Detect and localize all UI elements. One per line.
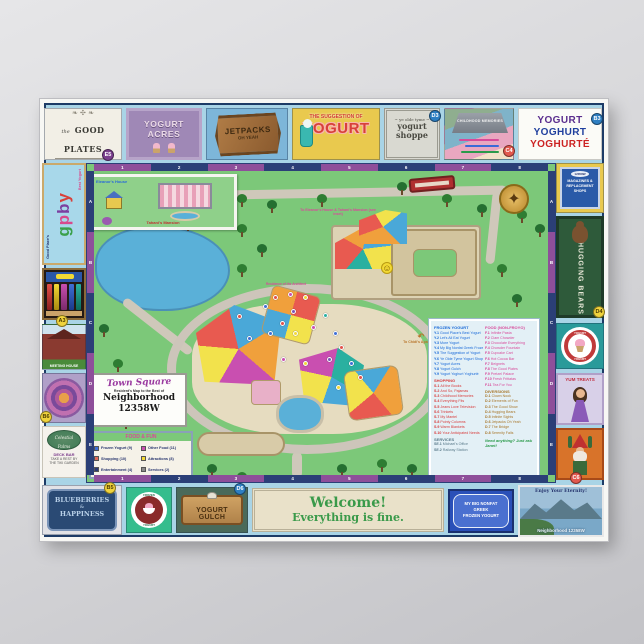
entry-code: S.7 [434, 415, 439, 419]
machine [54, 284, 59, 310]
location-marker [358, 375, 363, 380]
machine [61, 284, 66, 310]
entry-name: Serenity Falls [492, 431, 514, 435]
sign-yogurt-acres-label: YOGURT ACRES [129, 119, 199, 139]
gulch-wood-plaque: YOGURT GULCH [181, 495, 243, 525]
entry-name: Hugging Bears [492, 410, 516, 414]
grid-badge-yoghurte: B3 [591, 113, 603, 125]
grid-row-label: C [548, 293, 555, 354]
location-marker [311, 325, 316, 330]
location-marker [333, 331, 338, 336]
entry-name: Yogurt Gulch [440, 367, 461, 371]
dresser-illustration [452, 113, 508, 133]
welcome-line1: Welcome! [255, 495, 441, 511]
legend-item: Attractions (8) [141, 454, 188, 465]
storefront-awning [46, 272, 82, 282]
entry-code: D.1 [485, 394, 491, 398]
yoghurte-line1: YOGURT [519, 115, 601, 127]
blueberry-line3: HAPPINESS [49, 510, 115, 518]
entry-name: Yogurt Acres [440, 362, 460, 366]
entry-code: F.10 [485, 377, 492, 381]
gpby-b: b [54, 202, 73, 213]
cupcake-base [576, 346, 584, 352]
entry-name: Michael's Office [443, 442, 468, 446]
grid-col-label: 3 [208, 164, 265, 171]
entry-name: Infinite Pasta [491, 331, 512, 335]
entry-name: Jeans Love Television [440, 405, 475, 409]
directory-section-shopping: SHOPPING S.1All the BooksS.2And So, Paja… [434, 378, 483, 436]
grid-row-label: E [548, 414, 555, 475]
entry-name: Elements of Fun [492, 399, 518, 403]
entry-name: Clown Nook [492, 394, 511, 398]
welcome-line2: Everything is fine. [255, 511, 441, 524]
dress [571, 400, 589, 422]
meeting-house-photo: MEETING HOUSE [42, 324, 86, 370]
gpby-y: y [54, 192, 73, 202]
photo-background: ❧ ✣ ❧ the GOOD PLATES E5 YOGURT ACRES JE… [0, 0, 644, 644]
gulch-label: YOGURT GULCH [183, 507, 241, 521]
entry-name: My Mantel [440, 415, 457, 419]
grid-col-label: 2 [151, 164, 208, 171]
entry-code: Y.8 [434, 367, 439, 371]
legend-item: Other Food (11) [141, 443, 188, 454]
location-marker [303, 361, 308, 366]
tree [397, 182, 407, 195]
grid-col-label: 3 [208, 475, 265, 482]
grid-col-label: 6 [378, 164, 435, 171]
grid-row-label: E [87, 414, 94, 475]
grid-row-label: A [548, 171, 555, 232]
ring-text-bottom: YOGURT [561, 357, 599, 361]
entry-code: F.5 [485, 351, 490, 355]
directory-section-services: SERVICES SE.1Michael's OfficeSE.2Railway… [434, 437, 483, 453]
grid-col-label: 2 [151, 475, 208, 482]
entry-name: More Yogurt [440, 341, 459, 345]
gpby-wordmark: gpby [54, 192, 74, 237]
entry-code: S.1 [434, 384, 439, 388]
grid-badge-mandala: B6 [40, 411, 52, 423]
entry-name: Tea For You [493, 383, 512, 387]
machine [69, 284, 74, 310]
grid-col-label: 8 [491, 475, 548, 482]
entry-code: Y.3 [434, 341, 439, 345]
gpby-side-right: Best Yogurt [78, 169, 82, 190]
section-title: SERVICES [434, 437, 483, 442]
title-number: 12358W [93, 404, 185, 415]
pie-roof-building [343, 364, 404, 421]
entry-code: Y.5 [434, 351, 439, 355]
grid-strip-right: ABCDE [548, 171, 555, 475]
legend-label: Other Food (11) [148, 446, 176, 450]
directory-entry: D.8Serenity Falls [485, 431, 534, 436]
label-to-eleanor: To Eleanor's House & Tahani's Mansion (s… [296, 208, 380, 217]
trolley-windows [415, 181, 449, 188]
entry-code: S.2 [434, 389, 439, 393]
hostess-illustration [571, 387, 589, 423]
long-building [197, 432, 285, 456]
location-marker [339, 345, 344, 350]
storefront-photo [42, 268, 86, 320]
grid-badge-shoppe: D3 [429, 110, 441, 122]
celestial-logo: Celestial Palms [47, 430, 81, 450]
medal-text-top: FROZEN [131, 493, 167, 497]
tree [237, 224, 247, 237]
small-building [251, 380, 281, 405]
entry-name: And So, Pajamas [440, 389, 468, 393]
legend-swatch [94, 467, 99, 472]
nonfat-line2: GREEK [474, 507, 489, 512]
entry-name: Hot Cocoa Bar [491, 357, 515, 361]
tree [267, 200, 277, 213]
entry-name: My Big Nonfat Greek Frozen Yogurt [440, 346, 483, 350]
grid-row-label: B [87, 232, 94, 293]
gnome-hat [572, 434, 588, 448]
directory-left-column: FROZEN YOGURT Y.1Good Place's Best Yogur… [434, 324, 483, 472]
bear-illustration [572, 225, 588, 243]
tree [512, 294, 522, 307]
location-marker [288, 292, 293, 297]
entry-name: Pretzel Palace [491, 372, 514, 376]
section-title: SHOPPING [434, 378, 483, 383]
tree [535, 224, 545, 237]
entry-code: F.6 [485, 357, 490, 361]
grid-row-label: B [548, 232, 555, 293]
legend-swatch [141, 456, 146, 461]
shell-icon [207, 492, 217, 499]
script-squiggle [461, 151, 499, 153]
entry-name: The Suggestion of Yogurt [440, 351, 480, 355]
entry-code: S.4 [434, 399, 439, 403]
postcard-bottom-text: Neighborhood 12358W [520, 528, 602, 533]
grid-badge-good-plates: E5 [102, 149, 114, 161]
entry-code: D.2 [485, 399, 491, 403]
entry-name: The Good Plates [491, 367, 518, 371]
entry-name: The Good Show [492, 405, 518, 409]
entry-name: Railway Station [443, 448, 468, 452]
sign-my-big-nonfat: MY BIG NONFAT GREEK FROZEN YOGURT [448, 489, 514, 533]
entry-code: S.3 [434, 394, 439, 398]
froyo-cone-icon [153, 143, 160, 153]
sign-yogurt-acres: YOGURT ACRES [126, 108, 202, 160]
card-garden-gnome [556, 428, 604, 480]
entry-code: Y.9 [434, 372, 439, 376]
nonfat-line1: MY BIG NONFAT [465, 501, 498, 506]
medal-disc: FROZEN YOGURT [131, 492, 167, 528]
directory-entry: Y.9Yogurt Yoghurt Yoghurté [434, 372, 483, 377]
entry-name: Chowder Fountain [491, 346, 520, 350]
gpby-side-left: Good Place's [46, 235, 50, 259]
directory-right-column: FOOD (NON-FROYO) F.1Infinite PastaF.2Cla… [485, 324, 534, 472]
entry-code: Y.2 [434, 336, 439, 340]
location-marker [349, 361, 354, 366]
logo-froyo-medal: FROZEN YOGURT [126, 487, 172, 533]
grid-badge-gnome: C6 [570, 472, 582, 484]
location-marker [327, 357, 332, 362]
hugging-bears-label: HUGGING BEARS [577, 242, 584, 315]
house-caption: MEETING HOUSE [43, 364, 85, 368]
entry-code: F.9 [485, 372, 490, 376]
shops-line3: SHOPS [562, 189, 598, 194]
legend-swatch [141, 467, 146, 472]
nonfat-panel: MY BIG NONFAT GREEK FROZEN YOGURT [453, 494, 509, 528]
grid-col-label: 5 [321, 164, 378, 171]
ring-text-top: YOGURT [561, 331, 599, 335]
legend-item: Frozen Yogurt (9) [94, 443, 141, 454]
entry-code: D.7 [485, 425, 491, 429]
entry-code: F.7 [485, 362, 490, 366]
grid-badge-hugging-bears: D4 [593, 306, 605, 318]
nonfat-line3: FROZEN YOGURT [463, 513, 499, 518]
grid-col-label: 4 [264, 475, 321, 482]
banner-hugging-bears: HUGGING BEARS [556, 216, 604, 318]
welcome-panel: Welcome! Everything is fine. [252, 488, 444, 532]
directory-section-food: FOOD (NON-FROYO) F.1Infinite PastaF.2Cla… [485, 325, 534, 388]
logo-yogurt-ring: YOGURT YOGURT [556, 323, 604, 369]
grid-badge-gulch: D6 [234, 483, 246, 495]
froyo-cup-icon [300, 125, 313, 147]
entry-code: F.8 [485, 367, 490, 371]
entry-code: S.8 [434, 420, 439, 424]
legend-title: FOOD & FUN [91, 433, 191, 441]
location-marker [237, 314, 242, 319]
location-marker [336, 385, 341, 390]
grid-badge-gpby: A3 [56, 315, 68, 327]
entry-name: Fresh Frittatas [493, 377, 516, 381]
directory-section-diversions: DIVERSIONS D.1Clown NookD.2Elements of F… [485, 389, 534, 436]
grid-row-label: A [87, 171, 94, 232]
directory-panel: FROZEN YOGURT Y.1Good Place's Best Yogur… [429, 319, 539, 477]
location-marker [303, 295, 308, 300]
house-roof [47, 329, 81, 339]
legend-swatch [94, 446, 99, 451]
entry-name: Ye Olde Tyme Yogurt Shoppe [440, 357, 483, 361]
cupcake-icon [574, 339, 586, 352]
entry-code: S.6 [434, 410, 439, 414]
entry-name: Infinite Sights [492, 415, 514, 419]
tree [237, 264, 247, 277]
tree [317, 194, 327, 207]
storefront-sign-blur [56, 274, 74, 279]
entry-name: Warm Blankets [440, 425, 464, 429]
tree [99, 324, 109, 337]
tree [497, 264, 507, 277]
entry-code: D.6 [485, 420, 491, 424]
map-legend: FOOD & FUN Frozen Yogurt (9) Shopping (1… [89, 431, 193, 479]
section-title: FROZEN YOGURT [434, 325, 483, 330]
legend-swatch [94, 456, 99, 461]
entry-code: F.1 [485, 331, 490, 335]
grid-col-label: 4 [264, 164, 321, 171]
ring-logo-disc: YOGURT YOGURT [561, 327, 599, 365]
sign-replacement-shops: 12358W MAGAZINES & REPLACEMENT SHOPS [556, 163, 604, 213]
grid-strip-bottom: 12345678 [94, 475, 548, 482]
legend-label: Attractions (8) [148, 457, 174, 461]
entry-code: D.3 [485, 405, 491, 409]
tree [113, 359, 123, 372]
inset-label-eleanor: Eleanor's House [96, 179, 127, 184]
card-yum-treats: YUM TREATS [556, 373, 604, 425]
road [227, 186, 507, 200]
postcard-top-text: Enjoy Your Eternity! [520, 489, 602, 494]
location-marker [273, 295, 278, 300]
legend-label: Frozen Yogurt (9) [101, 446, 132, 450]
grid-badge-childhood: C4 [503, 145, 515, 157]
grid-col-label: 7 [435, 164, 492, 171]
sign-good-plates-pre: the [61, 129, 69, 135]
location-marker [323, 313, 328, 318]
yoghurte-line2: YOGHURT [519, 127, 601, 139]
legend-items: Frozen Yogurt (9) Shopping (10) Entertai… [91, 441, 191, 477]
entry-code: D.5 [485, 415, 491, 419]
location-marker [280, 321, 285, 326]
sign-shoppe-line2: shoppe [387, 131, 437, 140]
entry-name: Childhood Memories [440, 394, 473, 398]
postcard-photo: Enjoy Your Eternity! Neighborhood 12358W [518, 485, 604, 537]
directory-entry: S.10Your Anticipated Needs [434, 431, 483, 436]
legend-label: Services (2) [148, 468, 169, 472]
machine [47, 284, 52, 310]
manor-courtyard [413, 249, 457, 277]
location-marker [263, 304, 268, 309]
tree [377, 459, 387, 472]
directory-section-frozen-yogurt: FROZEN YOGURT Y.1Good Place's Best Yogur… [434, 325, 483, 377]
entry-name: Chocolate Everything [491, 341, 525, 345]
entry-code: SE.1 [434, 442, 442, 446]
grid-row-label: C [87, 293, 94, 354]
tree [477, 204, 487, 217]
cupcake-swirl [575, 339, 585, 347]
entry-name: Everything Fits [440, 399, 464, 403]
tree [237, 194, 247, 207]
entry-code: F.11 [485, 383, 492, 387]
froyo-cone-icon [168, 143, 175, 153]
directory-entry: F.11Tea For You [485, 383, 534, 388]
legend-item: Entertainment (4) [94, 464, 141, 475]
entry-name: Let's All Eat Yogurt [440, 336, 470, 340]
map-title-box: Town Square Resident's Map to the Best o… [91, 373, 187, 427]
gnome-arm [568, 436, 572, 448]
sign-gpby: Good Place's gpby Best Yogurt [42, 163, 86, 265]
face [576, 389, 585, 398]
blueberry-panel: BLUEBERRIES & HAPPINESS [47, 489, 117, 531]
map-poster: ❧ ✣ ❧ the GOOD PLATES E5 YOGURT ACRES JE… [40, 99, 608, 541]
gnome-arm [588, 436, 592, 448]
mountains [520, 497, 602, 519]
grid-row-label: D [87, 353, 94, 414]
legend-label: Entertainment (4) [101, 468, 132, 472]
sign-jetpacks: JETPACKS OH YEAH [206, 108, 288, 160]
section-title: DIVERSIONS [485, 389, 534, 394]
entry-name: Yogurt Yoghurt Yoghurté [440, 372, 479, 376]
tree [442, 194, 452, 207]
froyo-machines [47, 284, 81, 310]
entry-code: S.5 [434, 405, 439, 409]
wood-plaque: JETPACKS OH YEAH [214, 112, 282, 156]
entry-code: S.9 [434, 425, 439, 429]
machine [76, 284, 81, 310]
yoghurte-line3: YOGHURTÉ [519, 139, 601, 151]
yum-treats-label: YUM TREATS [558, 377, 602, 382]
entry-code: D.8 [485, 431, 491, 435]
grid-col-label: 8 [491, 164, 548, 171]
entry-name: The Bridge [492, 425, 510, 429]
entry-name: Trinkets [440, 410, 453, 414]
entry-code: SE.2 [434, 448, 442, 452]
flourish-ornament: ❧ ✣ ❧ [45, 109, 121, 118]
celestial-line3: THE TIKI GARDEN [43, 461, 85, 465]
entry-code: S.10 [434, 431, 441, 435]
grid-badge-blueberry: B5 [104, 482, 116, 494]
tahani-mansion-icon [158, 183, 212, 209]
sign-childhood-label: CHILDHOOD MEMORIES [452, 119, 508, 123]
grid-col-label: 5 [321, 475, 378, 482]
gpby-p: p [54, 214, 73, 225]
legend-swatch [141, 446, 146, 451]
location-marker [281, 357, 286, 362]
label-residence: Residence of the Architect [256, 282, 316, 286]
entry-code: F.3 [485, 341, 490, 345]
entry-code: F.4 [485, 346, 490, 350]
lake [95, 226, 230, 311]
entry-code: Y.6 [434, 357, 439, 361]
sign-suggestion-of-yogurt: THE SUGGESTION OF YOGURT [292, 108, 380, 160]
legend-item: Services (2) [141, 464, 188, 475]
entry-name: All the Books [440, 384, 461, 388]
directory-entry: SE.2Railway Station [434, 448, 483, 453]
script-squiggle [465, 145, 499, 147]
smiley-marker: ☺ [381, 262, 393, 274]
sign-celestial-palms: Celestial Palms DECK BAR TAKE A REST BY … [42, 426, 86, 478]
script-squiggle [459, 139, 499, 141]
gpby-g: g [54, 225, 73, 236]
neighborhood-map: 12345678 12345678 ABCDE ABCDE ✦ ☺ [86, 163, 556, 483]
entry-name: Clam Chowder [491, 336, 515, 340]
entry-name: Pointy Columns [440, 420, 465, 424]
entry-code: Y.1 [434, 331, 439, 335]
inset-label-tahani: Tahani's Mansion [92, 220, 234, 225]
title-neighborhood: Neighborhood [93, 393, 185, 404]
entry-name: Jetpacks Oh Yeah [492, 420, 521, 424]
entry-code: Y.4 [434, 346, 439, 350]
blueberry-line1: BLUEBERRIES [49, 496, 115, 504]
location-marker [247, 336, 252, 341]
entry-name: Beignets [491, 362, 505, 366]
section-title: FOOD (NON-FROYO) [485, 325, 534, 330]
shops-sign-panel: 12358W MAGAZINES & REPLACEMENT SHOPS [560, 167, 600, 209]
location-marker [268, 331, 273, 336]
entry-code: D.4 [485, 410, 491, 414]
janet-note: Need anything? Just ask Janet! [485, 438, 534, 448]
tree [257, 244, 267, 257]
location-marker [291, 309, 296, 314]
title-town-square: Town Square [93, 376, 185, 389]
entry-name: Cupcake Cart [491, 351, 513, 355]
entry-code: F.2 [485, 336, 490, 340]
grid-col-label: 7 [435, 475, 492, 482]
pond [276, 395, 324, 433]
shops-sign-oval: 12358W [571, 171, 589, 177]
legend-item: Shopping (10) [94, 454, 141, 465]
gnome-illustration [568, 434, 592, 478]
sign-good-plates-label: GOOD PLATES [64, 125, 105, 154]
medal-text-bottom: YOGURT [131, 523, 167, 527]
map-inset: Eleanor's House Tahani's Mansion [89, 174, 237, 230]
grid-col-label: 6 [378, 475, 435, 482]
grid-strip-top: 12345678 [94, 164, 548, 171]
grid-strip-left: ABCDE [87, 171, 94, 475]
sign-yogurt-yoghurt-yoghurte: YOGURT YOGHURT YOGHURTÉ [518, 108, 602, 160]
entry-name: Your Anticipated Needs [442, 431, 479, 435]
